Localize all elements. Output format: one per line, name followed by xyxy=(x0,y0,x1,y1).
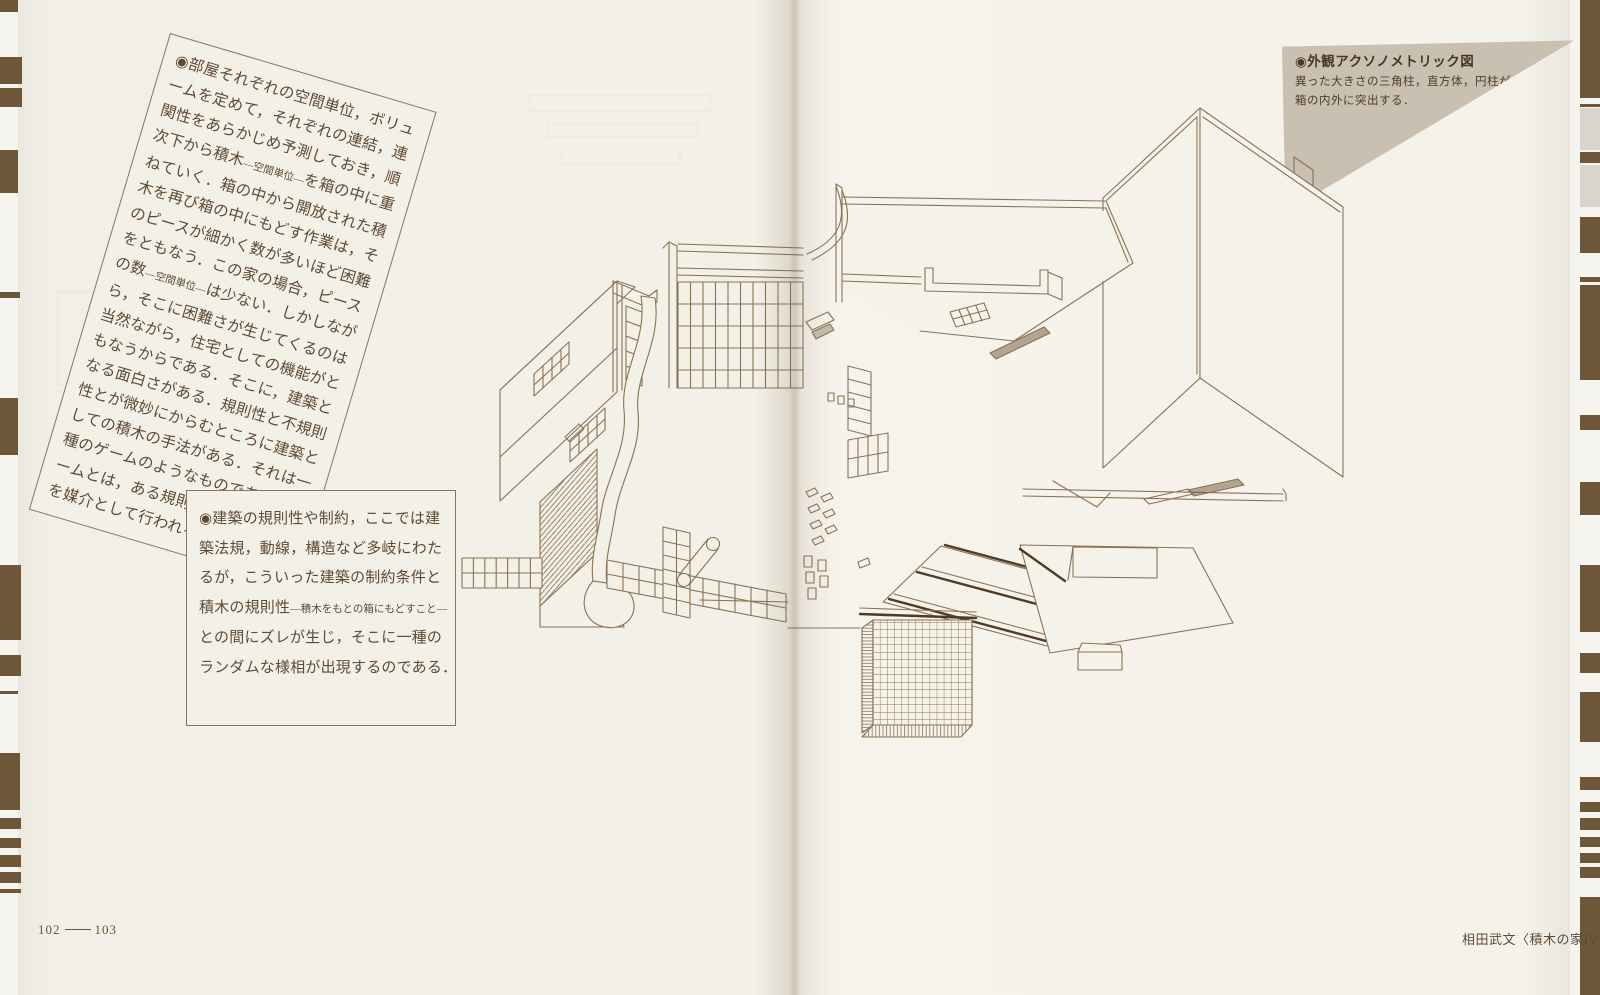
page-numbers: 102103 xyxy=(38,922,117,938)
page-edge-stripes-right xyxy=(1580,0,1600,995)
square-annotation-note: ◉建築の規則性や制約，ここでは建築法規，動線，構造など多岐にわたるが，こういった… xyxy=(186,490,456,726)
note-text-line: ◉建築の規則性や制約，ここでは建 xyxy=(199,505,443,535)
note-text-line: との間にズレが生じ，そこに一種の xyxy=(199,624,443,654)
footer-caption: 相田武文〈積木の家IV〉 xyxy=(1462,929,1600,948)
note-text-line: 積木の規則性—積木をもとの箱にもどすこと— xyxy=(199,594,443,625)
note-text-line: 築法規，動線，構造など多岐にわた xyxy=(199,535,443,565)
figure-callout-title: ◉外観アクソノメトリック図 xyxy=(1295,50,1474,70)
note-text-line: ランダムな様相が出現するのである． xyxy=(199,654,443,684)
figure-callout-body-line: 異った大きさの三角柱，直方体，円柱が xyxy=(1295,73,1511,89)
note-text-line: るが，こういった建築の制約条件と xyxy=(199,564,443,594)
scanned-book-spread: { "document": { "left_page_number": "102… xyxy=(0,0,1600,995)
figure-callout-body-line: 箱の内外に突出する． xyxy=(1295,92,1415,108)
page-number-rule xyxy=(65,929,91,930)
left-page-number: 102 xyxy=(38,922,61,937)
right-page-number: 103 xyxy=(95,922,118,937)
